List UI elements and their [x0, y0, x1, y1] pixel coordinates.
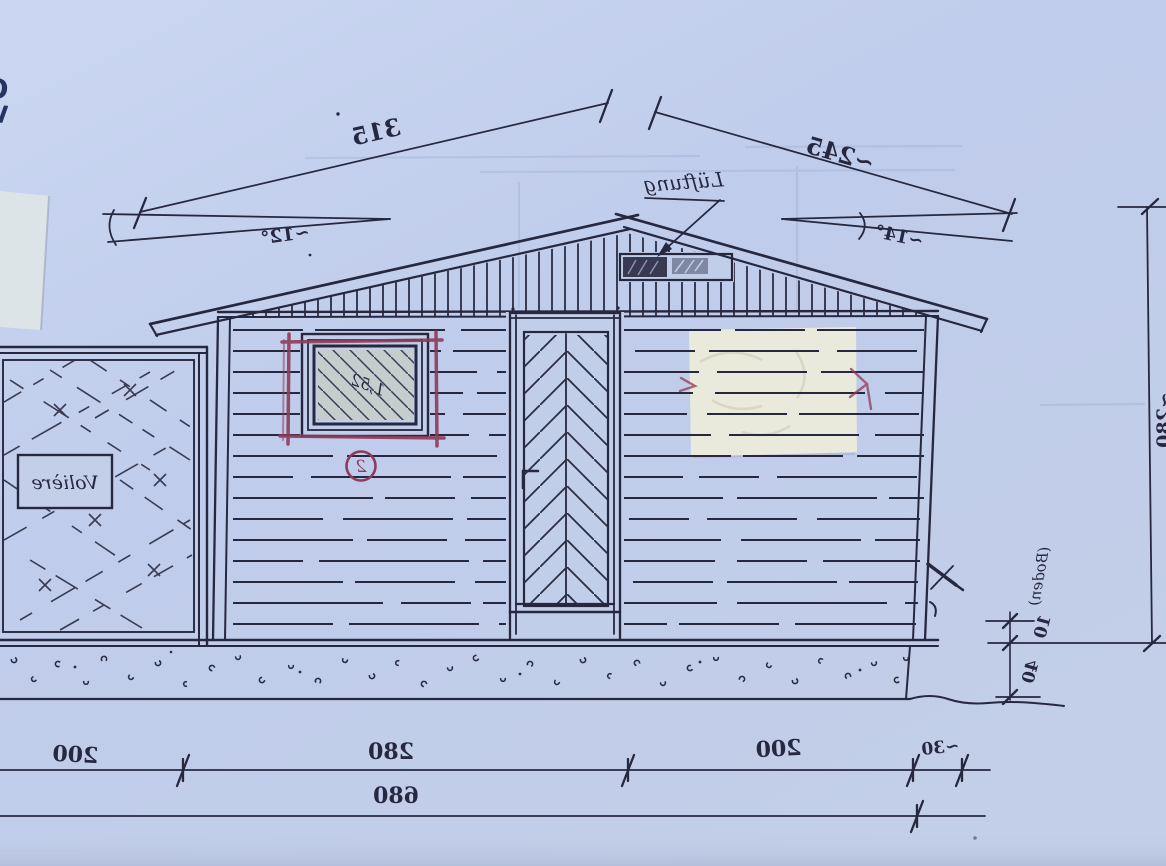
roof-vent	[618, 252, 734, 282]
window: 1,52	[300, 332, 430, 438]
dim-bottom-right-label: 200	[755, 735, 802, 763]
window-marker-label: 2	[356, 457, 368, 477]
dim-bottom-offset-label: ~30	[920, 736, 960, 760]
door	[506, 306, 624, 640]
paper-bottom-shadow	[0, 830, 1166, 866]
elevation-drawing: 1,52 2	[0, 0, 1166, 866]
aviary-label-box: Volière	[18, 455, 112, 508]
aviary-label: Volière	[31, 472, 98, 494]
dim-right-height-label: ~280	[1153, 392, 1166, 448]
white-patch-left	[0, 191, 49, 330]
dim-bottom-left-label: 200	[52, 741, 99, 769]
blueprint-photo: 1,52 2	[0, 0, 1166, 866]
dim-bottom-total-label: 680	[373, 783, 419, 809]
dim-bottom-middle-label: 280	[368, 739, 414, 765]
